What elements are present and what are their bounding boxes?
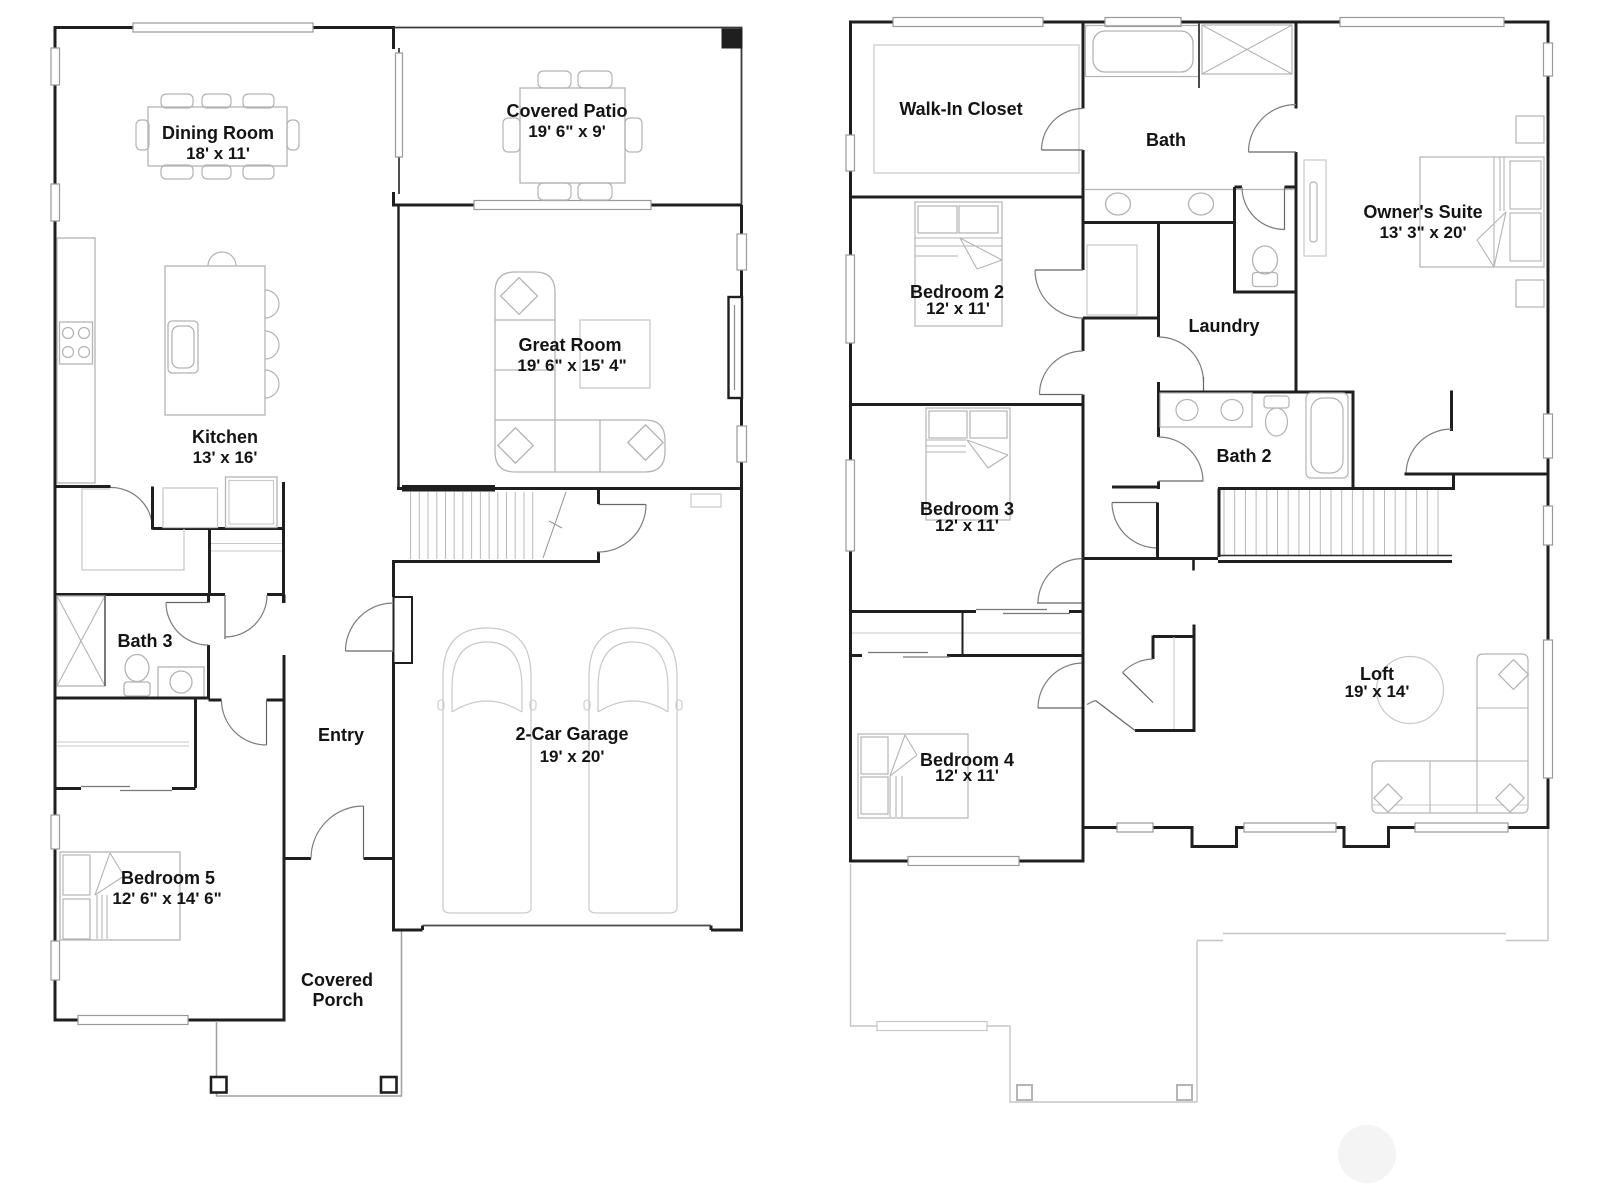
svg-text:Kitchen: Kitchen xyxy=(192,427,258,447)
svg-text:12' x 11': 12' x 11' xyxy=(935,766,999,785)
svg-text:Covered Patio: Covered Patio xyxy=(506,101,627,121)
svg-text:Great Room: Great Room xyxy=(518,335,621,355)
svg-text:12' 6" x 14' 6": 12' 6" x 14' 6" xyxy=(112,889,221,908)
svg-text:2-Car Garage: 2-Car Garage xyxy=(515,724,628,744)
svg-text:19' 6" x 15' 4": 19' 6" x 15' 4" xyxy=(517,356,626,375)
svg-text:19' x 20': 19' x 20' xyxy=(540,747,605,766)
svg-text:19' x 14': 19' x 14' xyxy=(1345,682,1410,701)
svg-text:12' x 11': 12' x 11' xyxy=(926,299,990,318)
svg-text:Bath 2: Bath 2 xyxy=(1216,446,1271,466)
svg-text:Loft: Loft xyxy=(1360,664,1394,684)
svg-text:Laundry: Laundry xyxy=(1188,316,1259,336)
svg-text:Bedroom 5: Bedroom 5 xyxy=(121,868,215,888)
svg-text:19' 6" x 9': 19' 6" x 9' xyxy=(528,122,606,141)
svg-text:Walk-In Closet: Walk-In Closet xyxy=(899,99,1022,119)
svg-text:13' 3" x 20': 13' 3" x 20' xyxy=(1379,223,1466,242)
svg-text:Bath: Bath xyxy=(1146,130,1186,150)
svg-text:13' x 16': 13' x 16' xyxy=(193,448,258,467)
svg-text:Bath 3: Bath 3 xyxy=(117,631,172,651)
svg-text:Entry: Entry xyxy=(318,725,364,745)
svg-text:Porch: Porch xyxy=(312,990,363,1010)
svg-text:Covered: Covered xyxy=(301,970,373,990)
svg-text:18' x 11': 18' x 11' xyxy=(186,144,250,163)
svg-text:Owner's Suite: Owner's Suite xyxy=(1363,202,1482,222)
svg-text:12' x 11': 12' x 11' xyxy=(935,516,999,535)
svg-text:Dining Room: Dining Room xyxy=(162,123,274,143)
